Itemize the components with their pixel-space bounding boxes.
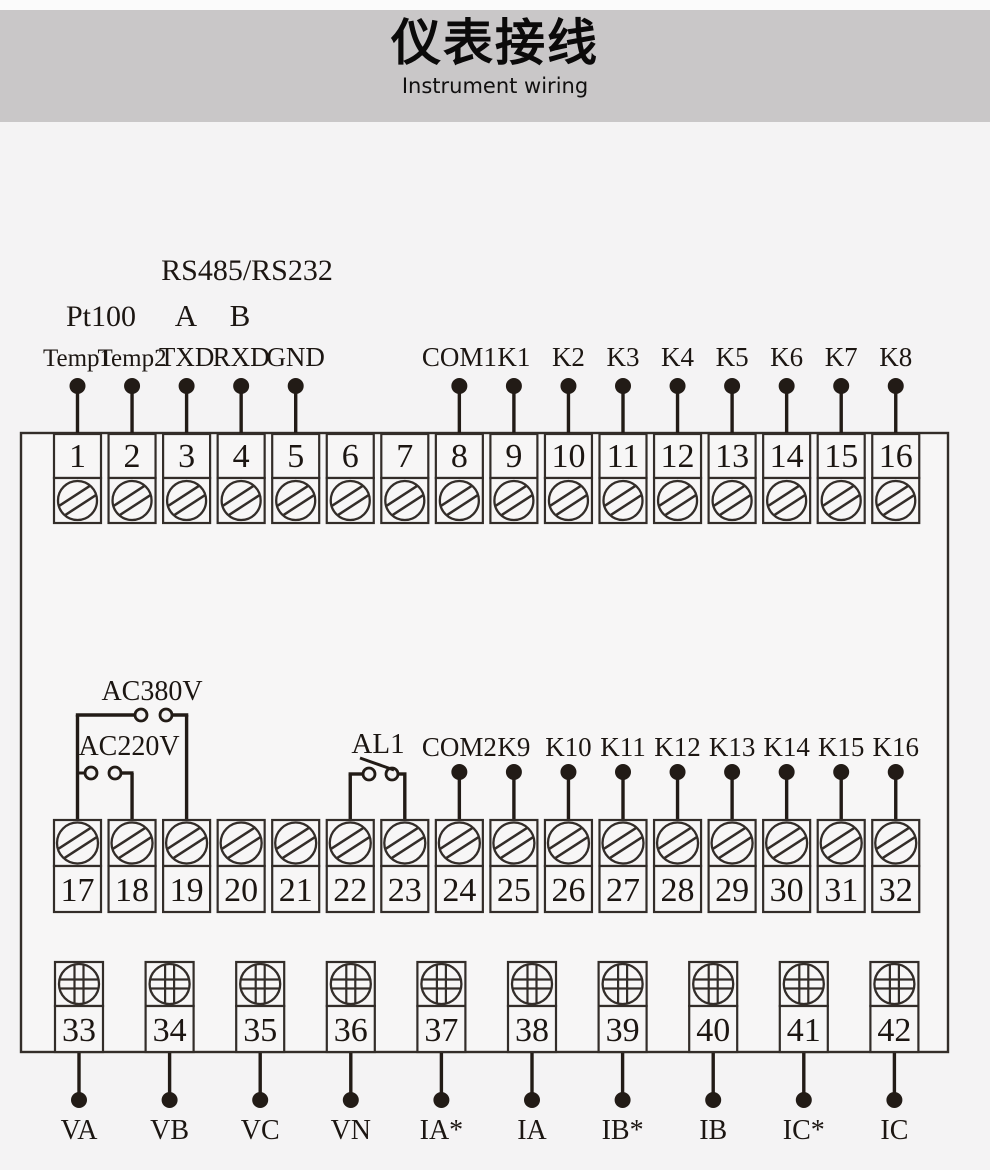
terminal-number: 19 — [170, 872, 204, 909]
terminal-32: 32 — [872, 820, 919, 912]
screw-terminal-icon — [167, 481, 206, 520]
wire-dot-icon — [506, 764, 522, 780]
terminal-18: 18 — [109, 820, 156, 912]
terminal-14-label: K6 — [770, 342, 803, 372]
terminal-11: 11 — [600, 434, 647, 523]
switch-contact-icon — [160, 709, 172, 721]
terminal-29-label: K13 — [709, 732, 756, 762]
terminal-8-label: COM1 — [422, 342, 497, 372]
wire-dot-icon — [288, 378, 304, 394]
ct-terminal-icon — [603, 964, 643, 1004]
terminal-42-label: IC — [880, 1115, 908, 1146]
terminal-number: 21 — [279, 872, 313, 909]
terminal-number: 7 — [396, 438, 413, 475]
terminal-2-label: Temp2 — [98, 345, 167, 372]
terminal-number: 8 — [451, 438, 468, 475]
terminal-32-label: K16 — [873, 732, 920, 762]
terminal-number: 1 — [69, 438, 86, 475]
terminal-36: 36 — [327, 962, 375, 1052]
wire-dot-icon — [343, 1092, 359, 1108]
wire-dot-icon — [615, 1092, 631, 1108]
terminal-41: 41 — [780, 962, 828, 1052]
terminal-number: 30 — [770, 872, 804, 909]
screw-terminal-icon — [440, 481, 479, 520]
screw-terminal-icon — [822, 481, 861, 520]
ct-terminal-icon — [784, 964, 824, 1004]
terminal-39: 39 — [599, 962, 647, 1052]
terminal-33-label: VA — [61, 1115, 99, 1146]
terminal-12-label: K4 — [661, 342, 694, 372]
terminal-2: 2 — [109, 434, 156, 523]
terminal-7: 7 — [381, 434, 428, 523]
terminal-40: 40 — [689, 962, 737, 1052]
wire-dot-icon — [451, 378, 467, 394]
terminal-41-label: IC* — [783, 1115, 825, 1146]
wire-dot-icon — [705, 1092, 721, 1108]
terminal-number: 27 — [606, 872, 640, 909]
terminal-5-label: GND — [266, 342, 325, 372]
terminal-3-label: TXD — [159, 342, 215, 372]
terminal-number: 32 — [879, 872, 913, 909]
ct-terminal-icon — [331, 964, 371, 1004]
wire-dot-icon — [71, 1092, 87, 1108]
terminal-number: 31 — [824, 872, 858, 909]
terminal-number: 11 — [607, 438, 640, 475]
terminal-number: 2 — [124, 438, 141, 475]
screw-terminal-icon — [604, 481, 643, 520]
screw-terminal-icon — [658, 481, 697, 520]
terminal-9-label: K1 — [497, 342, 530, 372]
screw-terminal-icon — [222, 481, 261, 520]
switch-contact-icon — [363, 768, 375, 780]
screw-terminal-icon — [875, 823, 916, 864]
terminal-17: 17 — [54, 820, 101, 912]
screw-terminal-icon — [331, 481, 370, 520]
terminal-number: 6 — [342, 438, 359, 475]
wire-dot-icon — [70, 378, 86, 394]
terminal-number: 22 — [333, 872, 367, 909]
terminal-number: 10 — [551, 438, 585, 475]
terminal-19: 19 — [163, 820, 210, 912]
wire-dot-icon — [162, 1092, 178, 1108]
wire-dot-icon — [779, 764, 795, 780]
screw-terminal-icon — [221, 823, 262, 864]
terminal-number: 24 — [442, 872, 476, 909]
rs485-rs232-label: RS485/RS232 — [161, 254, 333, 287]
screw-terminal-icon — [57, 823, 98, 864]
terminal-number: 25 — [497, 872, 531, 909]
wire-dot-icon — [670, 378, 686, 394]
terminal-31: 31 — [818, 820, 865, 912]
terminal-30-label: K14 — [763, 732, 810, 762]
wire-dot-icon — [724, 764, 740, 780]
terminal-11-label: K3 — [607, 342, 640, 372]
screw-terminal-icon — [166, 823, 207, 864]
wire-dot-icon — [888, 764, 904, 780]
wire-dot-icon — [179, 378, 195, 394]
switch-contact-icon — [109, 767, 121, 779]
wire-dot-icon — [833, 378, 849, 394]
screw-terminal-icon — [821, 823, 862, 864]
terminal-number: 18 — [115, 872, 149, 909]
terminal-number: 33 — [62, 1012, 96, 1049]
ac220v-label: AC220V — [78, 731, 179, 762]
terminal-35: 35 — [236, 962, 284, 1052]
bus-b-label: B — [230, 298, 251, 333]
terminal-number: 23 — [388, 872, 422, 909]
terminal-20: 20 — [218, 820, 265, 912]
terminal-6: 6 — [327, 434, 374, 523]
ct-terminal-icon — [693, 964, 733, 1004]
terminal-number: 26 — [551, 872, 585, 909]
screw-terminal-icon — [58, 481, 97, 520]
screw-terminal-icon — [713, 481, 752, 520]
terminal-number: 36 — [334, 1012, 368, 1049]
screw-terminal-icon — [876, 481, 915, 520]
terminal-34: 34 — [146, 962, 194, 1052]
terminal-number: 5 — [287, 438, 304, 475]
wire-dot-icon — [796, 1092, 812, 1108]
terminal-30: 30 — [763, 820, 810, 912]
screw-terminal-icon — [494, 481, 533, 520]
terminal-42: 42 — [870, 962, 918, 1052]
terminal-37: 37 — [417, 962, 465, 1052]
screw-terminal-icon — [767, 481, 806, 520]
wire-dot-icon — [888, 378, 904, 394]
terminal-3: 3 — [163, 434, 210, 523]
terminal-16: 16 — [872, 434, 919, 523]
screw-terminal-icon — [384, 823, 425, 864]
terminal-28-label: K12 — [654, 732, 701, 762]
ct-terminal-icon — [240, 964, 280, 1004]
wire-dot-icon — [252, 1092, 268, 1108]
wire-dot-icon — [433, 1092, 449, 1108]
screw-terminal-icon — [603, 823, 644, 864]
terminal-number: 42 — [877, 1012, 911, 1049]
terminal-26-label: K10 — [545, 732, 592, 762]
screw-terminal-icon — [766, 823, 807, 864]
wire-dot-icon — [615, 764, 631, 780]
terminal-27: 27 — [600, 820, 647, 912]
terminal-number: 13 — [715, 438, 749, 475]
wire-dot-icon — [560, 764, 576, 780]
screw-terminal-icon — [276, 481, 315, 520]
wire-dot-icon — [524, 1092, 540, 1108]
wire-dot-icon — [779, 378, 795, 394]
terminal-33: 33 — [55, 962, 103, 1052]
pt100-label: Pt100 — [66, 300, 136, 333]
terminal-39-label: IB* — [602, 1115, 644, 1146]
terminal-1: 1 — [54, 434, 101, 523]
terminal-29: 29 — [709, 820, 756, 912]
wire-dot-icon — [670, 764, 686, 780]
terminal-number: 41 — [787, 1012, 821, 1049]
wire-dot-icon — [233, 378, 249, 394]
wire-dot-icon — [833, 764, 849, 780]
terminal-number: 37 — [424, 1012, 458, 1049]
switch-contact-icon — [135, 709, 147, 721]
terminal-14: 14 — [763, 434, 810, 523]
screw-terminal-icon — [330, 823, 371, 864]
terminal-28: 28 — [654, 820, 701, 912]
terminal-15: 15 — [818, 434, 865, 523]
ct-terminal-icon — [421, 964, 461, 1004]
terminal-25-label: K9 — [497, 732, 530, 762]
terminal-number: 34 — [153, 1012, 187, 1049]
wire-dot-icon — [506, 378, 522, 394]
terminal-16-label: K8 — [879, 342, 912, 372]
terminal-8: 8 — [436, 434, 483, 523]
terminal-number: 38 — [515, 1012, 549, 1049]
screw-terminal-icon — [548, 823, 589, 864]
terminal-25: 25 — [490, 820, 537, 912]
terminal-number: 9 — [505, 438, 522, 475]
terminal-number: 40 — [696, 1012, 730, 1049]
ct-terminal-icon — [874, 964, 914, 1004]
terminal-number: 14 — [770, 438, 804, 475]
screw-terminal-icon — [113, 481, 152, 520]
wire-dot-icon — [724, 378, 740, 394]
terminal-21: 21 — [272, 820, 319, 912]
terminal-38-label: IA — [517, 1115, 547, 1146]
terminal-number: 4 — [233, 438, 250, 475]
screw-terminal-icon — [549, 481, 588, 520]
terminal-number: 29 — [715, 872, 749, 909]
terminal-4-label: RXD — [213, 342, 270, 372]
terminal-34-label: VB — [150, 1115, 189, 1146]
ct-terminal-icon — [512, 964, 552, 1004]
wire-dot-icon — [451, 764, 467, 780]
terminal-35-label: VC — [241, 1115, 280, 1146]
screw-terminal-icon — [493, 823, 534, 864]
ac380v-label: AC380V — [101, 676, 202, 707]
terminal-number: 3 — [178, 438, 195, 475]
al1-label: AL1 — [351, 728, 404, 760]
terminal-12: 12 — [654, 434, 701, 523]
screw-terminal-icon — [112, 823, 153, 864]
terminal-36-label: VN — [331, 1115, 371, 1146]
terminal-13-label: K5 — [716, 342, 749, 372]
terminal-31-label: K15 — [818, 732, 865, 762]
terminal-9: 9 — [490, 434, 537, 523]
terminal-number: 16 — [879, 438, 913, 475]
terminal-24-label: COM2 — [422, 732, 497, 762]
wire-dot-icon — [124, 378, 140, 394]
terminal-40-label: IB — [699, 1115, 727, 1146]
screw-terminal-icon — [439, 823, 480, 864]
terminal-15-label: K7 — [825, 342, 858, 372]
wire-dot-icon — [560, 378, 576, 394]
terminal-number: 28 — [661, 872, 695, 909]
terminal-5: 5 — [272, 434, 319, 523]
terminal-number: 35 — [243, 1012, 277, 1049]
screw-terminal-icon — [385, 481, 424, 520]
ct-terminal-icon — [59, 964, 99, 1004]
terminal-10: 10 — [545, 434, 592, 523]
terminal-22: 22 — [327, 820, 374, 912]
terminal-26: 26 — [545, 820, 592, 912]
terminal-number: 17 — [61, 872, 95, 909]
terminal-10-label: K2 — [552, 342, 585, 372]
switch-contact-icon — [85, 767, 97, 779]
terminal-number: 39 — [606, 1012, 640, 1049]
terminal-24: 24 — [436, 820, 483, 912]
ct-terminal-icon — [150, 964, 190, 1004]
terminal-number: 15 — [824, 438, 858, 475]
terminal-number: 12 — [661, 438, 695, 475]
terminal-number: 20 — [224, 872, 258, 909]
screw-terminal-icon — [657, 823, 698, 864]
terminal-13: 13 — [709, 434, 756, 523]
wire-dot-icon — [886, 1092, 902, 1108]
terminal-37-label: IA* — [420, 1115, 464, 1146]
bus-a-label: A — [175, 298, 198, 333]
wire-dot-icon — [615, 378, 631, 394]
terminal-27-label: K11 — [600, 732, 646, 762]
wiring-diagram: 1234567891011121314151617181920212223242… — [0, 0, 990, 1170]
terminal-23: 23 — [381, 820, 428, 912]
terminal-4: 4 — [218, 434, 265, 523]
screw-terminal-icon — [275, 823, 316, 864]
terminal-38: 38 — [508, 962, 556, 1052]
screw-terminal-icon — [712, 823, 753, 864]
